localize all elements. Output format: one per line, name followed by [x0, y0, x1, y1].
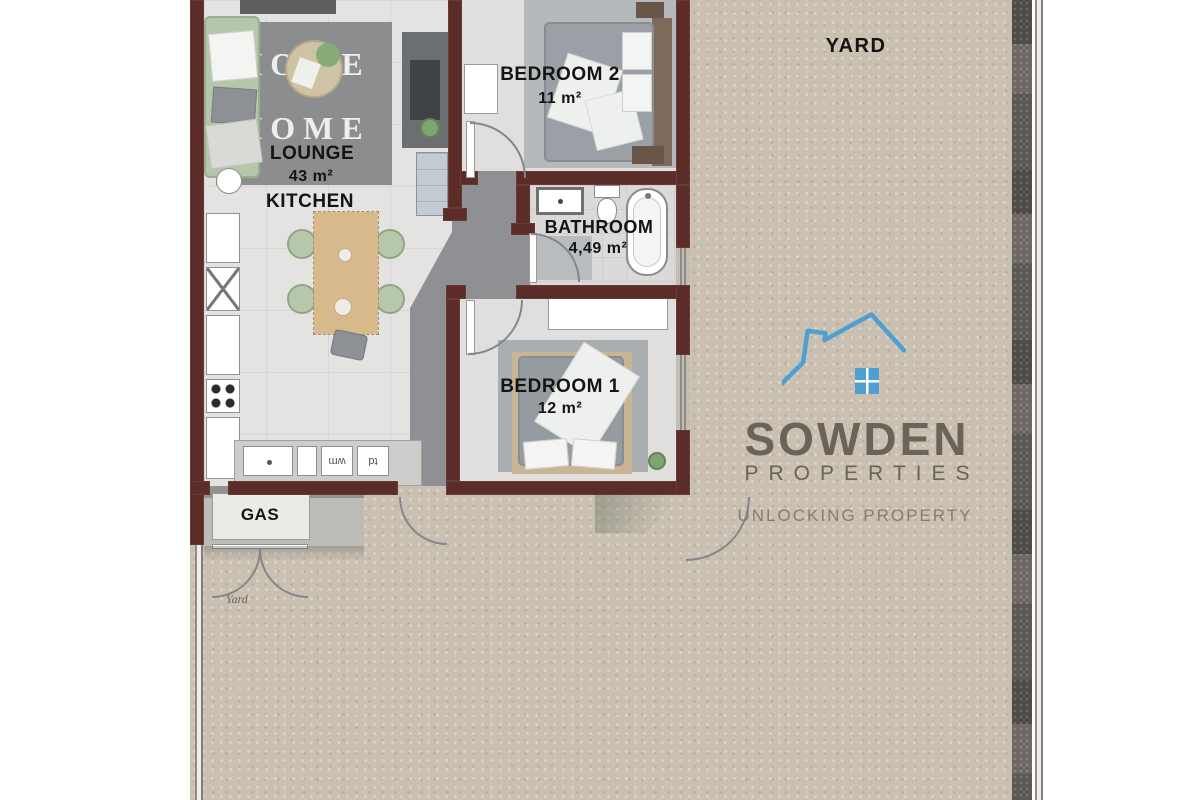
wall-right-bathroom: [676, 185, 690, 248]
wall-bedroom1-left: [446, 299, 460, 481]
wall-bathroom-left: [516, 185, 530, 225]
fence-left: [195, 540, 203, 800]
side-table: [216, 168, 242, 194]
counter-sink: [243, 446, 293, 476]
washing-machine-label: wm: [322, 447, 352, 475]
tumble-dryer-label: td: [358, 447, 388, 475]
nightstand: [636, 2, 664, 18]
table-plate: [338, 248, 352, 262]
yard-small-label: Yard: [226, 592, 248, 607]
brand-tagline: UNLOCKING PROPERTY: [737, 506, 972, 526]
house-logo-icon: [782, 302, 932, 400]
bathtub-faucet: [645, 193, 651, 199]
boundary-wall-right: [1012, 0, 1032, 800]
bedroom2-headboard: [652, 18, 672, 166]
lounge-area-label: 43 m²: [289, 168, 333, 186]
dining-table: [314, 212, 378, 334]
wall-bottom-b: [228, 481, 398, 495]
lounge-label: LOUNGE: [270, 143, 354, 165]
sofa-pillow-white: [208, 30, 258, 82]
display-cabinet: [416, 152, 448, 216]
wall-bedroom1-top: [516, 285, 690, 299]
wall-bottom-a: [190, 481, 210, 495]
kitchen-counter: [206, 315, 240, 375]
wall-right-mid: [676, 285, 690, 355]
wall-left-exterior: [190, 0, 204, 545]
washing-machine: wm: [321, 446, 353, 476]
bathroom-vanity: [536, 187, 584, 215]
round-jute-rug: [285, 40, 343, 98]
bedroom1-pillow: [523, 438, 569, 470]
potted-plant: [420, 118, 440, 138]
floorplan-canvas: HOME HOME wm td: [0, 0, 1200, 800]
dining-chair: [375, 229, 405, 259]
nightstand: [632, 146, 664, 164]
vanity-drain: [558, 199, 563, 204]
kitchen-label: KITCHEN: [266, 191, 354, 213]
wall-right-bottom: [676, 430, 690, 495]
stove: [206, 379, 240, 413]
bathroom-label: BATHROOM: [545, 217, 654, 238]
tv-unit: [240, 0, 336, 14]
bedroom1-plant: [648, 452, 666, 470]
sofa-throw-blanket: [205, 119, 263, 170]
gas-label: GAS: [241, 505, 279, 525]
tv-screen: [410, 60, 440, 120]
sink-drain: [267, 460, 272, 465]
fence-right: [1035, 0, 1043, 800]
table-plate: [334, 298, 352, 316]
bedroom2-pillow: [622, 32, 652, 70]
bathroom-area-label: 4,49 m²: [569, 240, 628, 258]
bedroom1-area-label: 12 m²: [538, 400, 582, 418]
wall-bottom-c: [446, 481, 684, 495]
bedroom2-area-label: 11 m²: [538, 90, 581, 108]
brand-subtitle: PROPERTIES: [735, 462, 980, 486]
bedroom1-window: [676, 355, 690, 430]
bedroom1-label: BEDROOM 1: [500, 376, 620, 398]
toilet-tank: [594, 185, 620, 198]
wall-end-cap: [443, 208, 467, 221]
bedroom2-pillow: [622, 74, 652, 112]
blanket-scrap: [291, 57, 321, 89]
dining-chair: [287, 284, 317, 314]
bathroom-window: [676, 248, 690, 285]
kitchen-counter: [206, 213, 240, 263]
wall-right-bedroom2: [676, 0, 690, 185]
kitchen-sink-unit: [206, 267, 240, 311]
counter-cabinet: [297, 446, 317, 476]
bedroom2-closet: [464, 64, 498, 114]
wall-bedroom1-top-stub: [446, 285, 466, 299]
bedroom2-label: BEDROOM 2: [500, 64, 620, 86]
dining-chair: [375, 284, 405, 314]
yard-label: YARD: [826, 35, 887, 58]
bedroom1-pillow: [571, 438, 617, 470]
brand-name: SOWDEN: [745, 412, 970, 466]
dining-chair: [287, 229, 317, 259]
tumble-dryer: td: [357, 446, 389, 476]
wall-bedroom2-bottom: [516, 171, 690, 185]
